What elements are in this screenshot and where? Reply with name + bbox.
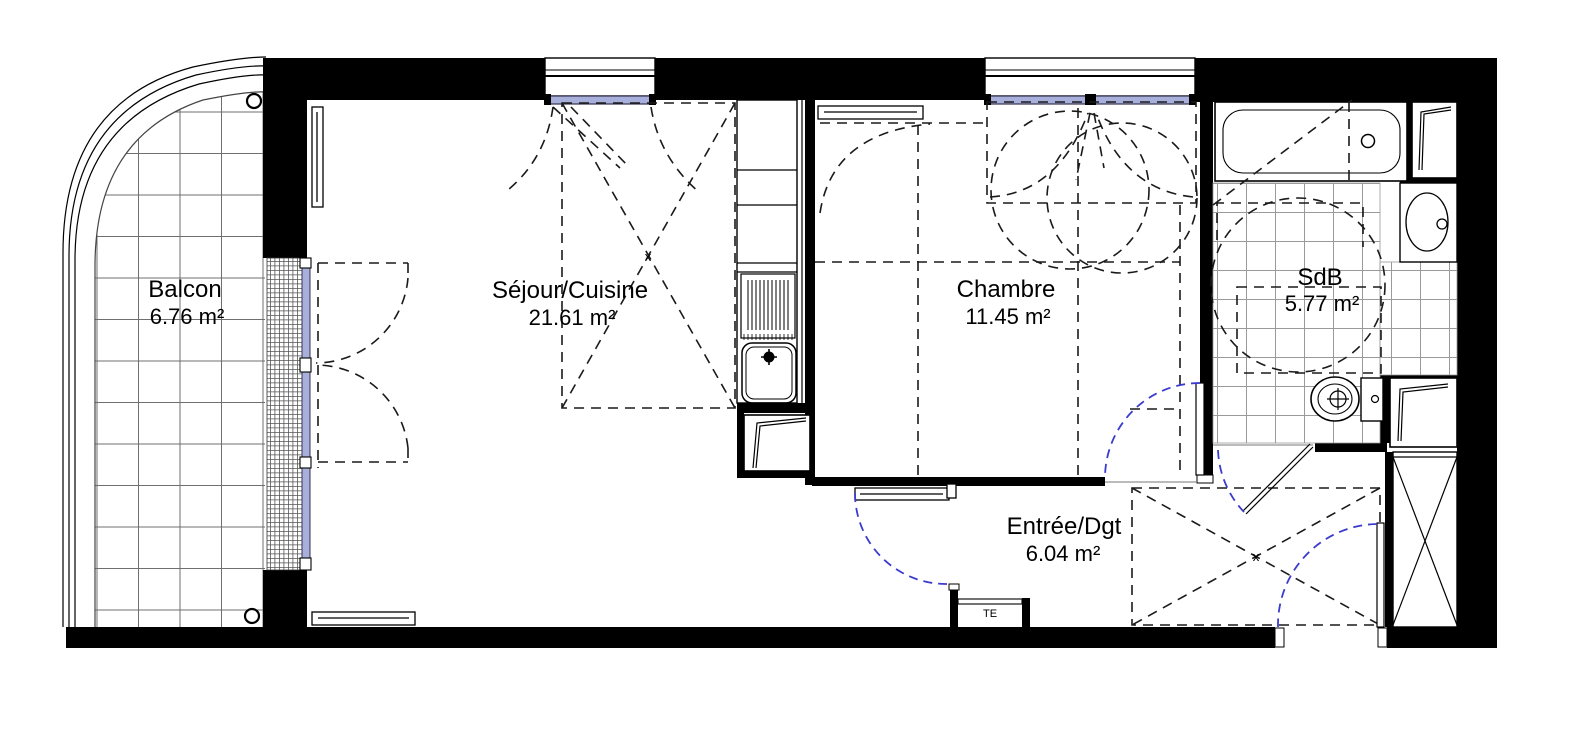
washbasin <box>1400 183 1457 262</box>
label-sejour-name: Séjour/Cuisine <box>492 277 648 304</box>
label-chambre-name: Chambre <box>957 276 1056 303</box>
technical-shaft <box>1393 452 1457 627</box>
balcony-drain-top <box>247 94 261 108</box>
chambre-window <box>984 58 1196 105</box>
sejour-window <box>544 58 656 105</box>
label-chambre-area: 11.45 m² <box>965 304 1050 329</box>
bathtub <box>1215 102 1407 181</box>
sejour-cross-marker: x <box>645 249 652 264</box>
label-sdb-name: SdB <box>1297 264 1342 291</box>
closet-cross-marker: x <box>1253 549 1260 564</box>
electrical-panel-box <box>949 584 1022 604</box>
label-entree-name: Entrée/Dgt <box>1007 513 1122 540</box>
appliance-column <box>1390 378 1457 447</box>
label-balcon-area: 6.76 m² <box>150 304 225 329</box>
floor-plan-drawing: Balcon 6.76 m² Séjour/Cuisine 21.61 m² C… <box>0 0 1571 753</box>
front-door-leaf <box>1377 523 1384 627</box>
toilet <box>1311 377 1383 421</box>
label-entree-area: 6.04 m² <box>1026 541 1101 566</box>
floor-plan: Balcon 6.76 m² Séjour/Cuisine 21.61 m² C… <box>0 0 1571 753</box>
towel-column <box>1412 102 1457 178</box>
balcony-drain-bottom <box>245 609 259 623</box>
label-sejour-area: 21.61 m² <box>529 305 616 330</box>
label-sdb-area: 5.77 m² <box>1285 291 1360 316</box>
sdb-door-leaf <box>1243 444 1313 514</box>
balcony-door-window <box>267 258 311 570</box>
kitchen-tall-unit <box>744 415 810 471</box>
label-electrical-panel: TE <box>983 608 997 620</box>
balcony <box>63 57 266 627</box>
chambre-door-leaf <box>1196 383 1204 475</box>
kitchen-counter <box>737 100 810 471</box>
radiators <box>312 106 956 625</box>
label-balcon-name: Balcon <box>148 276 221 303</box>
